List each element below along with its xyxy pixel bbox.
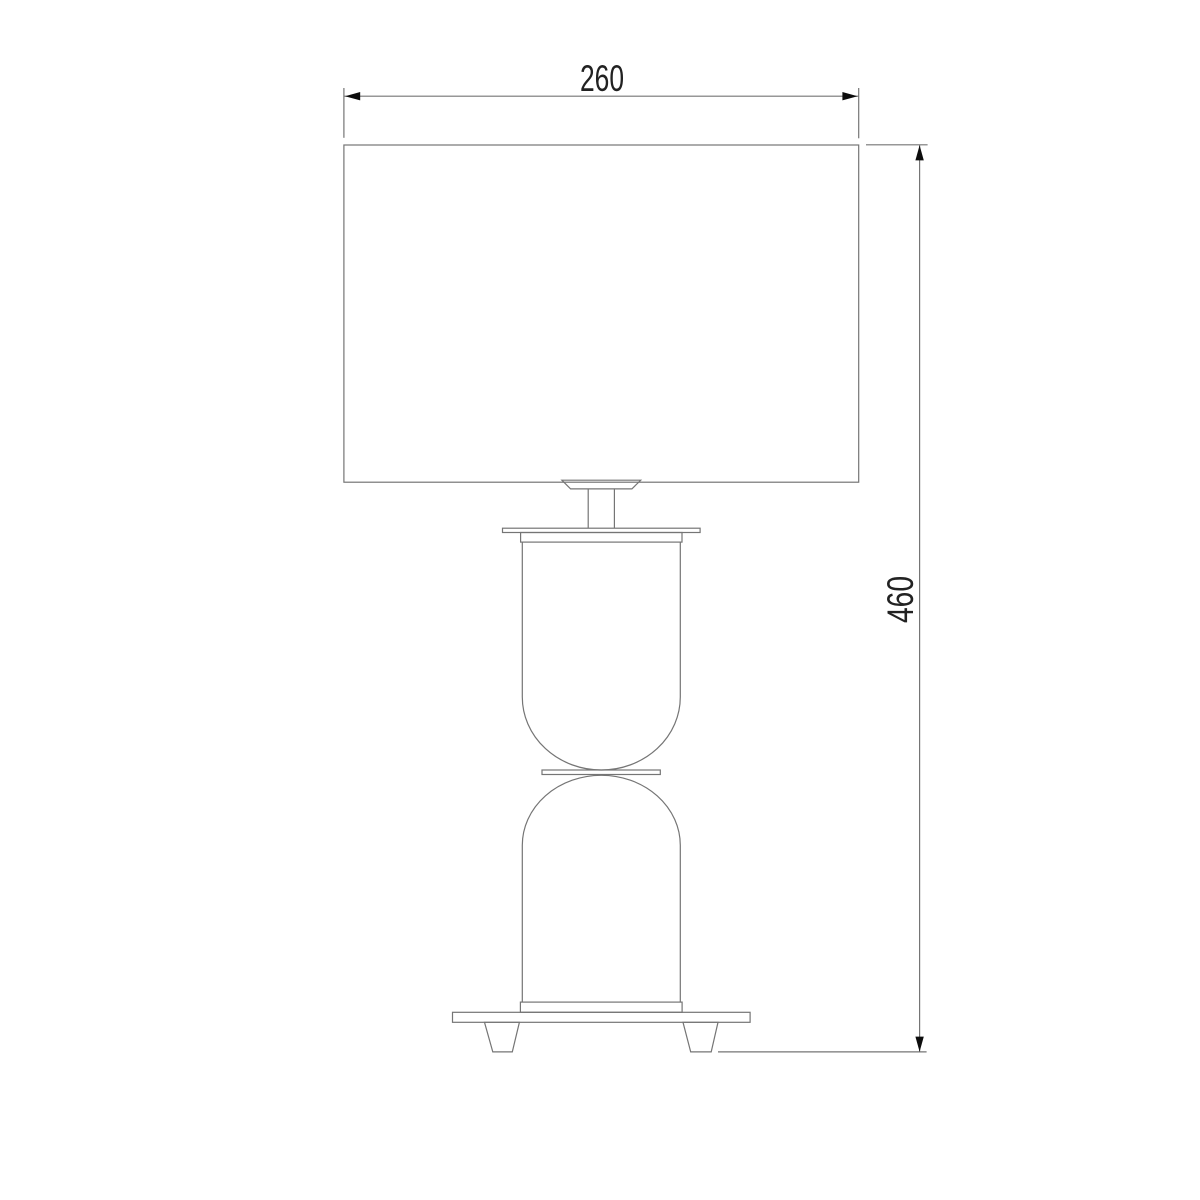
svg-text:460: 460 — [880, 576, 921, 623]
svg-text:260: 260 — [580, 58, 624, 99]
